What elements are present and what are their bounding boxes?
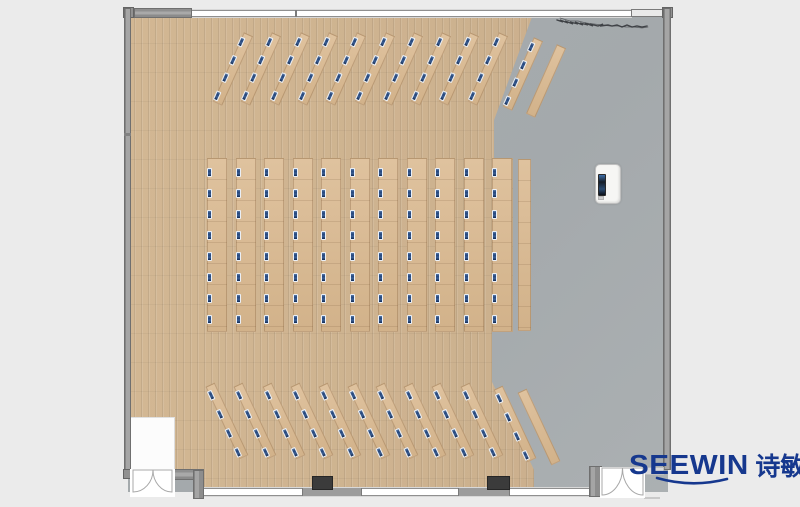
- chair-mark: [350, 210, 355, 219]
- wall-south-step-vertical: [193, 470, 204, 499]
- desk-row: [321, 158, 341, 332]
- wall-west: [124, 8, 131, 477]
- chair-mark: [476, 72, 485, 83]
- chair-mark: [464, 252, 469, 261]
- chair-mark: [321, 168, 326, 177]
- chair-mark: [407, 294, 412, 303]
- chair-mark: [407, 252, 412, 261]
- chair-mark: [470, 409, 479, 420]
- chair-mark: [298, 90, 307, 101]
- chair-mark: [262, 447, 271, 458]
- chair-mark: [451, 428, 460, 439]
- chair-mark: [350, 36, 359, 47]
- structural-column-2: [487, 476, 510, 490]
- chair-mark: [511, 77, 520, 88]
- chair-mark: [492, 189, 497, 198]
- chair-mark: [264, 231, 269, 240]
- chair-mark: [492, 294, 497, 303]
- chair-mark: [375, 447, 384, 458]
- wall-north-solid-segment: [134, 8, 192, 18]
- desk-row: [350, 158, 370, 332]
- chair-mark: [293, 273, 298, 282]
- chair-mark: [419, 72, 428, 83]
- chair-mark: [350, 231, 355, 240]
- floorplan-scene: SEEWIN 诗敏: [0, 0, 800, 507]
- window-band-north: [192, 10, 632, 17]
- chair-mark: [257, 54, 266, 65]
- chair-mark: [447, 72, 456, 83]
- chair-mark: [492, 210, 497, 219]
- chair-mark: [385, 409, 394, 420]
- chair-mark: [464, 210, 469, 219]
- chair-mark: [318, 447, 327, 458]
- wall-southwest-cap: [123, 469, 132, 479]
- chair-mark: [464, 231, 469, 240]
- chair-mark: [362, 72, 371, 83]
- chair-mark: [216, 409, 225, 420]
- chair-mark: [306, 72, 315, 83]
- chair-mark: [244, 409, 253, 420]
- chair-mark: [236, 294, 241, 303]
- desk-row: [518, 159, 531, 331]
- chair-mark: [435, 231, 440, 240]
- chair-mark: [377, 390, 386, 401]
- entry-alcove: [131, 417, 175, 470]
- desk-row: [236, 158, 256, 332]
- chair-mark: [407, 231, 412, 240]
- desk-row: [435, 158, 455, 332]
- chair-mark: [293, 231, 298, 240]
- chair-mark: [233, 447, 242, 458]
- chair-mark: [399, 54, 408, 65]
- chair-mark: [435, 36, 444, 47]
- chair-mark: [350, 168, 355, 177]
- chair-mark: [347, 447, 356, 458]
- chair-mark: [293, 294, 298, 303]
- chair-mark: [264, 168, 269, 177]
- chair-mark: [241, 90, 250, 101]
- chair-mark: [435, 210, 440, 219]
- desk-row: [264, 158, 284, 332]
- chair-mark: [225, 428, 234, 439]
- desk-row: [293, 158, 313, 332]
- chair-mark: [492, 36, 501, 47]
- chair-mark: [350, 315, 355, 324]
- lectern-screen: [598, 174, 606, 196]
- wall-east: [663, 8, 671, 470]
- chair-mark: [492, 273, 497, 282]
- door-threshold-line: [644, 497, 660, 499]
- chair-mark: [427, 54, 436, 65]
- chair-mark: [207, 189, 212, 198]
- chair-mark: [463, 36, 472, 47]
- chair-mark: [207, 210, 212, 219]
- chair-mark: [464, 168, 469, 177]
- chair-mark: [407, 189, 412, 198]
- chair-mark: [264, 210, 269, 219]
- chair-mark: [479, 428, 488, 439]
- chair-mark: [326, 90, 335, 101]
- furniture-layer: [0, 0, 800, 507]
- chair-mark: [293, 252, 298, 261]
- chair-mark: [492, 231, 497, 240]
- wall-west-joint: [124, 133, 131, 136]
- chair-mark: [314, 54, 323, 65]
- chair-mark: [321, 315, 326, 324]
- chair-mark: [407, 273, 412, 282]
- chair-mark: [321, 189, 326, 198]
- chair-mark: [272, 409, 281, 420]
- chair-mark: [321, 210, 326, 219]
- chair-mark: [301, 409, 310, 420]
- chair-mark: [221, 72, 230, 83]
- door-jamb-southeast: [589, 466, 602, 497]
- chair-mark: [464, 273, 469, 282]
- chair-mark: [460, 447, 469, 458]
- chair-mark: [378, 273, 383, 282]
- chair-mark: [405, 390, 414, 401]
- chair-mark: [435, 294, 440, 303]
- chair-mark: [350, 294, 355, 303]
- chair-mark: [236, 273, 241, 282]
- chair-mark: [281, 428, 290, 439]
- chair-mark: [378, 36, 387, 47]
- chair-mark: [442, 409, 451, 420]
- chair-mark: [207, 273, 212, 282]
- chair-mark: [236, 210, 241, 219]
- chair-mark: [264, 273, 269, 282]
- chair-mark: [403, 447, 412, 458]
- chair-mark: [236, 231, 241, 240]
- chair-mark: [435, 252, 440, 261]
- chair-mark: [391, 72, 400, 83]
- chair-mark: [264, 315, 269, 324]
- chair-mark: [423, 428, 432, 439]
- chair-mark: [207, 168, 212, 177]
- chair-mark: [321, 252, 326, 261]
- chair-mark: [370, 54, 379, 65]
- chair-mark: [411, 90, 420, 101]
- chair-mark: [264, 294, 269, 303]
- desk-row: [464, 158, 484, 332]
- chair-mark: [350, 252, 355, 261]
- chair-mark: [504, 412, 513, 423]
- chair-mark: [293, 36, 302, 47]
- chair-mark: [378, 168, 383, 177]
- chair-mark: [468, 90, 477, 101]
- chair-mark: [321, 231, 326, 240]
- chair-mark: [321, 273, 326, 282]
- chair-mark: [334, 72, 343, 83]
- chair-mark: [309, 428, 318, 439]
- logo-swoosh-icon: [653, 476, 731, 488]
- chair-mark: [236, 168, 241, 177]
- chair-mark: [495, 393, 504, 404]
- chair-mark: [293, 189, 298, 198]
- lectern-pad: [598, 196, 604, 200]
- chair-mark: [290, 447, 299, 458]
- chair-mark: [350, 189, 355, 198]
- chair-mark: [329, 409, 338, 420]
- chair-mark: [378, 294, 383, 303]
- desk-row: [492, 158, 512, 332]
- desk-row: [207, 158, 227, 332]
- chair-mark: [229, 54, 238, 65]
- chair-mark: [292, 390, 301, 401]
- chair-mark: [519, 59, 528, 70]
- chair-mark: [433, 390, 442, 401]
- chair-mark: [207, 390, 216, 401]
- chair-mark: [407, 210, 412, 219]
- chair-mark: [321, 294, 326, 303]
- chair-mark: [414, 409, 423, 420]
- chair-mark: [435, 273, 440, 282]
- chair-mark: [492, 168, 497, 177]
- chair-mark: [407, 168, 412, 177]
- chair-mark: [378, 252, 383, 261]
- chair-mark: [435, 168, 440, 177]
- chair-mark: [503, 95, 512, 106]
- chair-mark: [354, 90, 363, 101]
- chair-mark: [439, 90, 448, 101]
- chair-mark: [527, 41, 536, 52]
- chair-mark: [394, 428, 403, 439]
- chair-mark: [407, 315, 412, 324]
- chair-mark: [269, 90, 278, 101]
- chair-mark: [207, 252, 212, 261]
- chair-mark: [236, 252, 241, 261]
- chair-mark: [378, 189, 383, 198]
- chair-mark: [435, 189, 440, 198]
- chair-mark: [213, 90, 222, 101]
- structural-column-1: [312, 476, 333, 490]
- chair-mark: [464, 294, 469, 303]
- chair-mark: [488, 447, 497, 458]
- chair-mark: [264, 252, 269, 261]
- window-mullion-north: [295, 10, 297, 17]
- chair-mark: [513, 431, 522, 442]
- chair-mark: [492, 252, 497, 261]
- chair-mark: [237, 36, 246, 47]
- chair-mark: [435, 315, 440, 324]
- chair-mark: [342, 54, 351, 65]
- chair-mark: [338, 428, 347, 439]
- desk-row: [378, 158, 398, 332]
- chair-mark: [357, 409, 366, 420]
- chair-mark: [207, 294, 212, 303]
- chair-mark: [378, 315, 383, 324]
- chair-mark: [366, 428, 375, 439]
- chair-mark: [521, 450, 530, 461]
- chair-mark: [464, 315, 469, 324]
- chair-mark: [484, 54, 493, 65]
- chair-mark: [263, 390, 272, 401]
- brand-cjk-name: 诗敏: [755, 452, 800, 482]
- desk-row: [407, 158, 427, 332]
- whiteboard: [631, 9, 664, 17]
- chair-mark: [207, 315, 212, 324]
- chair-mark: [407, 36, 416, 47]
- chair-mark: [461, 390, 470, 401]
- chair-mark: [249, 72, 258, 83]
- chair-mark: [322, 36, 331, 47]
- chair-mark: [235, 390, 244, 401]
- chair-mark: [277, 72, 286, 83]
- chair-mark: [264, 189, 269, 198]
- chair-mark: [265, 36, 274, 47]
- chair-mark: [455, 54, 464, 65]
- chair-mark: [253, 428, 262, 439]
- chair-mark: [293, 168, 298, 177]
- chair-mark: [236, 315, 241, 324]
- chair-mark: [236, 189, 241, 198]
- chair-mark: [207, 231, 212, 240]
- window-band-south: [204, 488, 590, 496]
- chair-mark: [378, 210, 383, 219]
- chair-mark: [464, 189, 469, 198]
- chair-mark: [293, 210, 298, 219]
- chair-mark: [431, 447, 440, 458]
- chair-mark: [383, 90, 392, 101]
- chair-mark: [492, 315, 497, 324]
- chair-mark: [293, 315, 298, 324]
- chair-mark: [348, 390, 357, 401]
- brand-logo: SEEWIN 诗敏: [629, 451, 800, 485]
- chair-mark: [285, 54, 294, 65]
- chair-mark: [320, 390, 329, 401]
- lectern: [595, 164, 621, 204]
- chair-mark: [350, 273, 355, 282]
- chair-mark: [378, 231, 383, 240]
